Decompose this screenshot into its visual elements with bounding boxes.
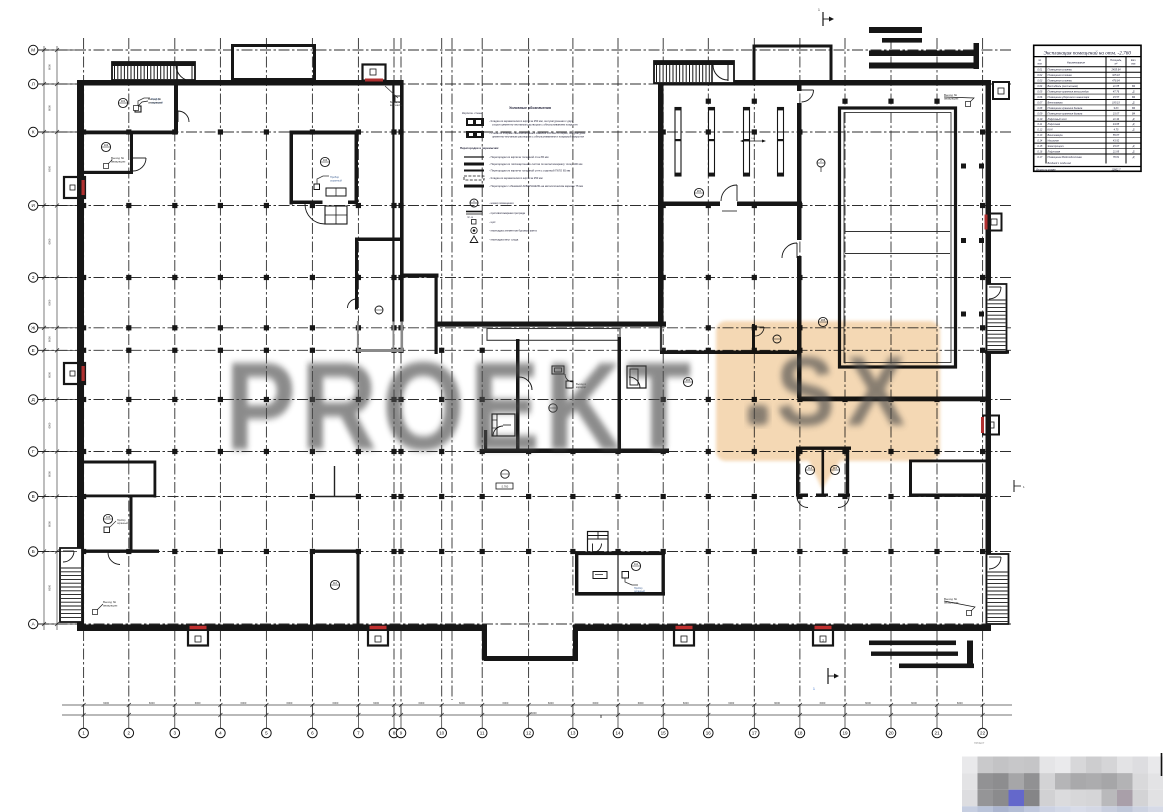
svg-text:0.15: 0.15 [1037,145,1042,148]
svg-text:6000: 6000 [820,701,826,705]
svg-text:SX: SX [776,337,917,446]
svg-text:201: 201 [697,189,702,193]
svg-text:Лифтовая: Лифтовая [1047,150,1061,153]
svg-text:м²: м² [1115,63,1118,66]
svg-text:-2.760: -2.760 [501,485,509,489]
svg-text:Перегородки и перемычки:: Перегородки и перемычки: [460,146,499,150]
svg-text:Помещения стоянки: Помещения стоянки [1048,69,1073,72]
svg-text:Помещение хранения багажа: Помещение хранения багажа [1048,107,1083,110]
svg-text:17: 17 [752,731,758,736]
svg-text:102: 102 [104,143,109,147]
svg-text:Площадь,: Площадь, [1110,58,1122,62]
svg-text:Лифтовый холл: Лифтовый холл [1047,118,1068,121]
svg-text:Помещения стоянки: Помещения стоянки [1048,80,1073,83]
svg-text:Помещение хранения велосипедов: Помещение хранения велосипедов [1048,91,1090,94]
svg-text:6000: 6000 [48,336,52,342]
svg-text:6000: 6000 [48,238,52,244]
svg-text:- Кладка из керамического кирп: - Кладка из керамического кирпича 250 мм [489,176,543,180]
svg-text:9.03: 9.03 [1114,107,1119,110]
svg-text:6000: 6000 [865,701,871,705]
svg-text:пом.: пом. [1131,63,1136,66]
svg-text:PROEKT: PROEKT [225,336,696,476]
svg-text:Л: Л [32,82,35,87]
svg-text:6000: 6000 [503,701,509,705]
svg-text:21.44: 21.44 [1112,118,1120,121]
svg-text:55.87: 55.87 [1113,134,1120,137]
svg-text:6000: 6000 [48,471,52,477]
svg-text:Электрощит.: Электрощит. [1048,145,1065,148]
svg-text:эвакуации: эвакуации [944,96,959,100]
svg-text:0.16: 0.16 [1037,150,1042,153]
svg-text:6000: 6000 [774,701,780,705]
svg-text:Д: Д [1132,129,1135,132]
svg-text:11: 11 [480,731,485,736]
svg-text:В: В [32,494,35,499]
svg-text:0.03: 0.03 [1037,80,1042,83]
svg-text:4: 4 [219,731,222,736]
svg-text:Б: Б [32,549,35,554]
svg-text:- противопожарная преграда: - противопожарная преграда [489,212,526,215]
svg-text:101: 101 [121,99,126,103]
svg-text:111: 111 [634,562,638,566]
svg-text:0.01: 0.01 [1037,69,1042,72]
svg-text:эвакуации: эвакуации [148,100,163,104]
svg-text:эвакуации: эвакуации [103,603,118,607]
svg-text:6000: 6000 [333,701,339,705]
svg-text:78.81: 78.81 [1113,156,1120,159]
svg-text:66000: 66000 [529,711,537,715]
svg-text:15: 15 [661,731,667,736]
svg-text:0.11: 0.11 [1037,123,1042,126]
svg-text:18: 18 [797,731,803,736]
svg-text:Венткамера: Венткамера [1048,134,1064,137]
svg-text:И: И [32,203,35,208]
svg-text:Вестибюль (лестничная): Вестибюль (лестничная) [1048,85,1079,88]
svg-text:0.07: 0.07 [1037,101,1042,104]
svg-text:104: 104 [323,158,328,162]
svg-text:21.85: 21.85 [1112,85,1120,88]
svg-text:Ж: Ж [31,325,36,330]
svg-text:6000: 6000 [48,422,52,428]
svg-text:Наименование: Наименование [1067,61,1085,65]
svg-text:185.15: 185.15 [1112,101,1120,104]
svg-text:6000: 6000 [48,64,52,70]
svg-text:- Перегородки с обшивкой АКВАП: - Перегородки с обшивкой АКВАПАНЕЛЬ на м… [489,184,583,188]
svg-text:0.14: 0.14 [1037,140,1042,143]
svg-text:1: 1 [813,687,815,691]
svg-text:6000: 6000 [48,584,52,590]
svg-text:М: М [31,48,35,53]
svg-text:№: № [1038,59,1041,62]
svg-text:Экспликация помещений на отм.: Экспликация помещений на отм. -2.760 [1044,50,1132,57]
svg-text:0.08: 0.08 [1037,107,1042,110]
svg-text:476.64: 476.64 [1112,80,1120,83]
svg-text:6000: 6000 [103,701,109,705]
svg-text:Насосная: Насосная [1048,140,1060,143]
svg-text:Помещение уборочного инвентаря: Помещение уборочного инвентаря [1048,96,1090,99]
svg-text:Входной с схода зал: Входной с схода зал [1048,162,1072,165]
svg-text:Д: Д [1132,91,1135,94]
svg-text:6000: 6000 [548,701,554,705]
svg-text:эвакуации: эвакуации [944,600,959,604]
svg-text:Д: Д [1132,101,1135,104]
svg-text:4.75: 4.75 [1114,129,1119,132]
svg-text:13: 13 [570,731,576,736]
svg-text:Венткамера: Венткамера [1048,101,1064,104]
svg-text:6000: 6000 [48,299,52,305]
svg-text:0.17: 0.17 [1037,156,1042,159]
svg-text:21: 21 [934,731,940,736]
svg-text:Кирпичн. стены: Кирпичн. стены [462,111,482,115]
svg-text:6000: 6000 [195,701,201,705]
svg-text:3: 3 [822,639,824,643]
svg-text:6000: 6000 [287,701,293,705]
svg-text:- Перегородки из кирпича толщи: - Перегородки из кирпича толщиной стен с… [489,169,570,173]
svg-text:сторон цементно-песчаным раств: сторон цементно-песчаным раствором с обе… [492,123,578,127]
svg-text:47.76: 47.76 [1113,91,1120,94]
svg-text:0.13: 0.13 [1037,134,1042,137]
svg-text:9: 9 [400,731,403,736]
svg-text:охранный: охранный [330,178,342,182]
svg-text:Лифтовая: Лифтовая [1047,123,1061,126]
svg-text:6000: 6000 [911,701,917,705]
svg-text:15.57: 15.57 [1113,96,1120,99]
svg-text:325.18: 325.18 [1112,74,1120,77]
svg-text:- номер помещения: - номер помещения [489,202,514,205]
svg-text:12: 12 [526,731,532,736]
svg-text:44.88: 44.88 [1113,123,1120,126]
svg-text:43.92: 43.92 [1113,140,1120,143]
svg-text:Помещения стоянки: Помещения стоянки [1048,74,1073,77]
svg-text:Итого по этажу: Итого по этажу [1036,168,1056,171]
svg-text:0.04: 0.04 [1037,85,1042,88]
svg-text:Прибор: Прибор [330,175,340,179]
svg-text:6000: 6000 [683,701,689,705]
svg-text:6000: 6000 [149,701,155,705]
svg-text:7: 7 [357,731,360,736]
svg-text:К: К [32,130,35,135]
svg-text:20: 20 [888,731,894,736]
svg-text:1: 1 [82,731,85,736]
svg-text:10562.7: 10562.7 [1111,168,1121,171]
svg-text:вентшахты: вентшахты [390,104,402,107]
svg-text:8: 8 [393,731,396,736]
svg-text:2: 2 [128,731,131,736]
svg-text:10: 10 [439,731,445,736]
svg-text:6000: 6000 [638,701,644,705]
svg-text:110: 110 [333,581,338,585]
svg-text:Кат.: Кат. [1131,59,1137,62]
svg-text:Д: Д [1132,150,1135,153]
svg-text:Д: Д [1132,156,1135,159]
svg-text:Д: Д [1132,118,1135,121]
svg-text:охранный: охранный [117,522,129,525]
svg-text:0.06: 0.06 [1037,96,1042,99]
svg-text:5: 5 [265,731,268,736]
svg-text:6000: 6000 [48,521,52,527]
svg-text:Д: Д [1132,123,1135,126]
svg-text:- Стены из сборных железобетон: - Стены из сборных железобетонных панеле… [489,131,586,135]
svg-text:- пересадка элементов буровых: - пересадка элементов буровых șанта [489,229,537,233]
svg-text:3: 3 [174,731,177,736]
svg-text:105: 105 [106,515,111,519]
svg-text:6000: 6000 [957,701,963,705]
svg-text:6000: 6000 [373,701,379,705]
svg-text:0.09: 0.09 [1037,112,1042,115]
svg-text:6000: 6000 [459,701,465,705]
svg-text:1: 1 [818,8,820,12]
svg-text:6000: 6000 [48,105,52,111]
svg-text:0.05: 0.05 [1037,91,1042,94]
svg-text:Е: Е [32,348,35,353]
svg-text:0.02: 0.02 [1037,74,1042,77]
svg-text:6: 6 [311,731,314,736]
svg-text:6000: 6000 [728,701,734,705]
svg-text:19: 19 [842,731,848,736]
svg-text:эвакуации: эвакуации [111,159,126,163]
svg-text:пом.: пом. [1037,63,1042,66]
svg-text:З: З [32,275,35,280]
svg-text:6000: 6000 [48,371,52,377]
svg-text:21.85: 21.85 [1112,150,1120,153]
svg-text:6000: 6000 [419,701,425,705]
svg-text:КУИ: КУИ [1048,129,1053,132]
svg-text:6000: 6000 [241,701,247,705]
svg-text:Помещение Водоподготовки: Помещение Водоподготовки [1048,156,1083,159]
svg-text:ПРОЕКТ: ПРОЕКТ [974,741,985,745]
svg-text:- щит: - щит [489,221,496,224]
svg-text:6000: 6000 [48,165,52,171]
svg-text:15.07: 15.07 [1113,112,1120,115]
svg-text:ПР 45: ПР 45 [467,217,474,219]
svg-text:- Перегородки из кирпича толщ: - Перегородки из кирпича толщиной стен 6… [489,155,549,159]
svg-text:2405.64: 2405.64 [1110,69,1121,72]
svg-text:- Кладка из керамического кирп: - Кладка из керамического кирпича 250 мм… [489,119,574,123]
svg-text:- Перегородки из гипсокартонны: - Перегородки из гипсокартонных листов п… [489,162,582,166]
svg-text:цементно-песчаным раствором с: цементно-песчаным раствором с обеспылива… [492,135,584,139]
svg-text:охранный: охранный [634,590,646,593]
svg-text:22: 22 [980,731,986,736]
svg-text:16: 16 [706,731,712,736]
svg-text:Помещение хранения багажа: Помещение хранения багажа [1048,112,1083,115]
svg-text:14: 14 [615,731,621,736]
svg-text:0.10: 0.10 [1037,118,1042,121]
svg-text:6000: 6000 [593,701,599,705]
svg-text:0.12: 0.12 [1037,129,1042,132]
svg-text:15.07: 15.07 [1113,145,1120,148]
svg-text:Условные обозначения: Условные обозначения [509,106,551,110]
svg-text:Д: Д [1132,145,1135,148]
svg-text:- пересадка мест схода: - пересадка мест схода [489,239,519,242]
